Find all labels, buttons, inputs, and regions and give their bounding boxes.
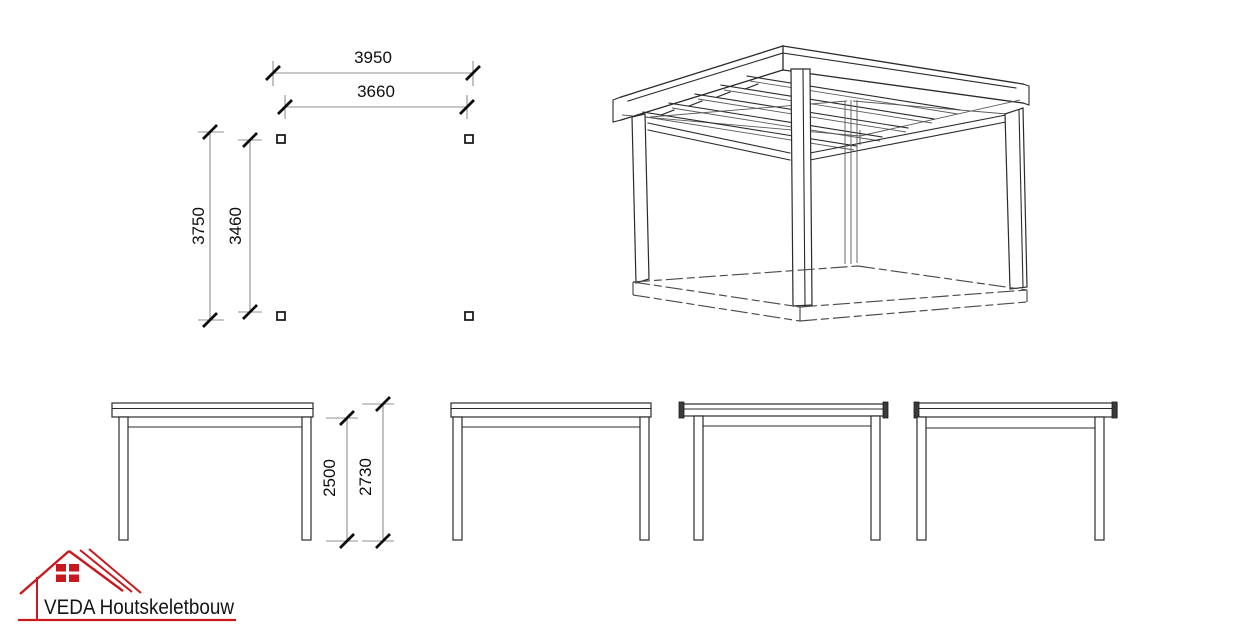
elevation-height-dimensions: 2500 2730: [320, 397, 394, 548]
logo: VEDA Houtskeletbouw: [18, 549, 236, 621]
posts-depth-dimension-label: 3460: [226, 207, 245, 245]
iso-floor: [633, 266, 1027, 321]
total-height-dimension-label: 2730: [356, 458, 375, 496]
post-marker: [277, 312, 285, 320]
elevation-view-2: [451, 403, 651, 540]
pergola-technical-drawing-page: 3950 3660 3750 3460: [0, 0, 1244, 631]
isometric-view: [613, 46, 1029, 321]
roof-depth-dimension-label: 3750: [189, 207, 208, 245]
posts-width-dimension-label: 3660: [357, 82, 395, 101]
iso-side-beams: [648, 101, 1007, 160]
dim-total-height: 2730: [356, 397, 394, 548]
post-marker: [277, 135, 285, 143]
elevation-view-3: [679, 402, 888, 540]
pergola-technical-drawing: 3950 3660 3750 3460: [0, 0, 1244, 631]
dim-post-height: 2500: [320, 411, 358, 548]
elevation-view-4: [914, 402, 1117, 540]
window-icon: [56, 564, 79, 582]
post-marker: [465, 312, 473, 320]
roof-width-dimension-label: 3950: [354, 48, 392, 67]
elevation-view-1: [112, 403, 313, 540]
post-marker: [465, 135, 473, 143]
plan-dim-posts-depth: 3460: [226, 133, 262, 319]
plan-view: 3950 3660 3750 3460: [189, 48, 480, 327]
plan-dim-roof-width: 3950: [266, 48, 480, 86]
post-height-dimension-label: 2500: [320, 459, 339, 497]
plan-dim-roof-depth: 3750: [189, 125, 224, 327]
plan-dim-posts-width: 3660: [278, 82, 474, 119]
company-name: VEDA Houtskeletbouw: [44, 596, 235, 619]
